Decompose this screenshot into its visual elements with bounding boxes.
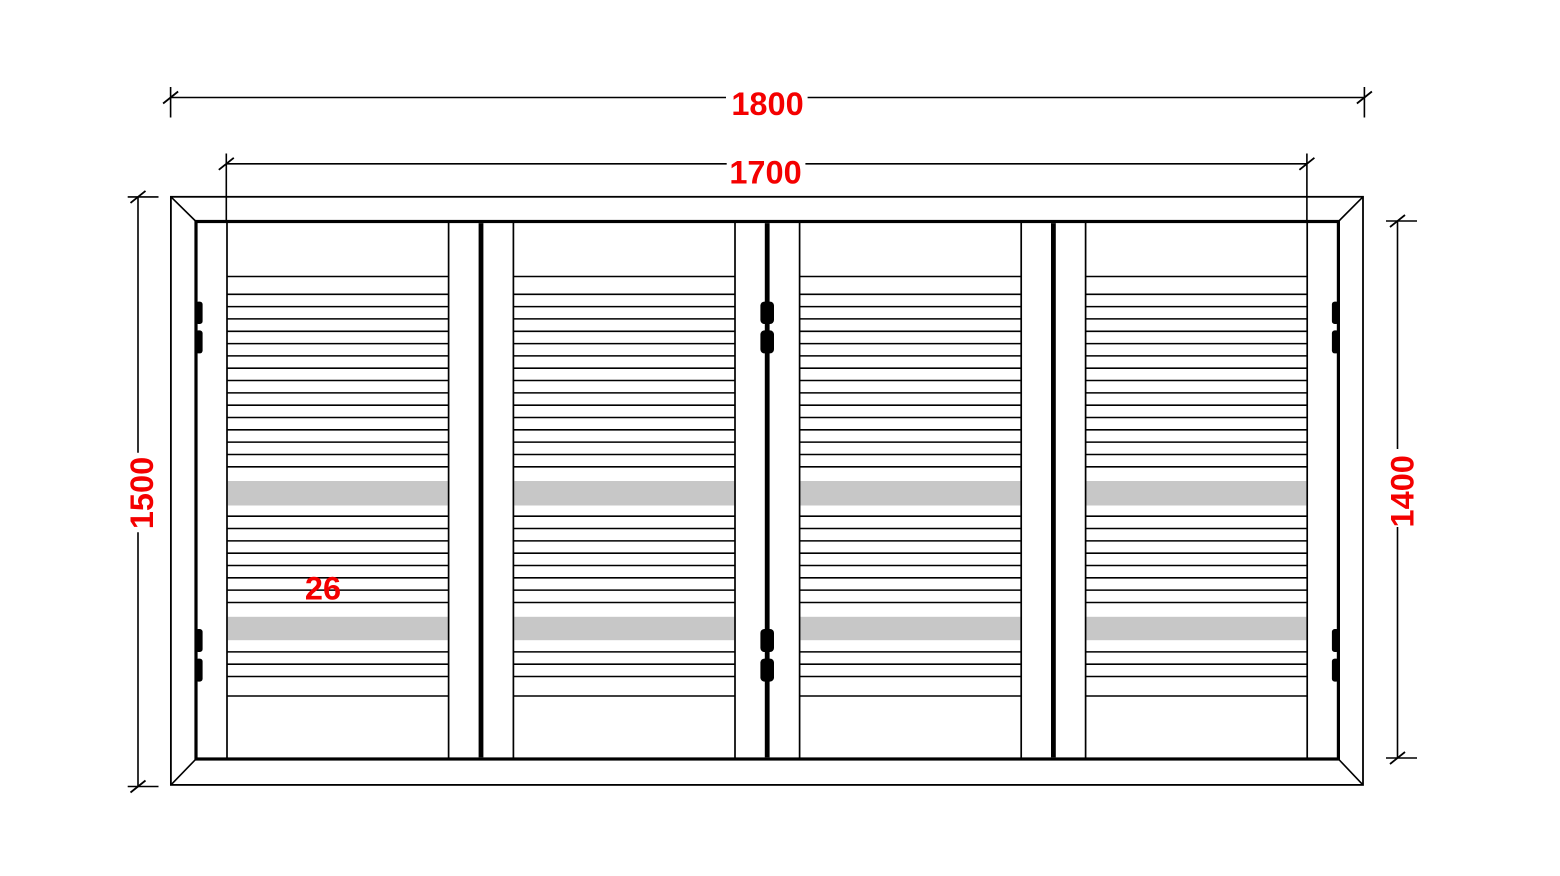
svg-text:1400: 1400 xyxy=(1385,455,1421,527)
svg-text:1800: 1800 xyxy=(731,86,803,122)
svg-text:26: 26 xyxy=(305,571,341,607)
svg-text:1500: 1500 xyxy=(124,457,160,529)
svg-text:1700: 1700 xyxy=(729,155,801,191)
